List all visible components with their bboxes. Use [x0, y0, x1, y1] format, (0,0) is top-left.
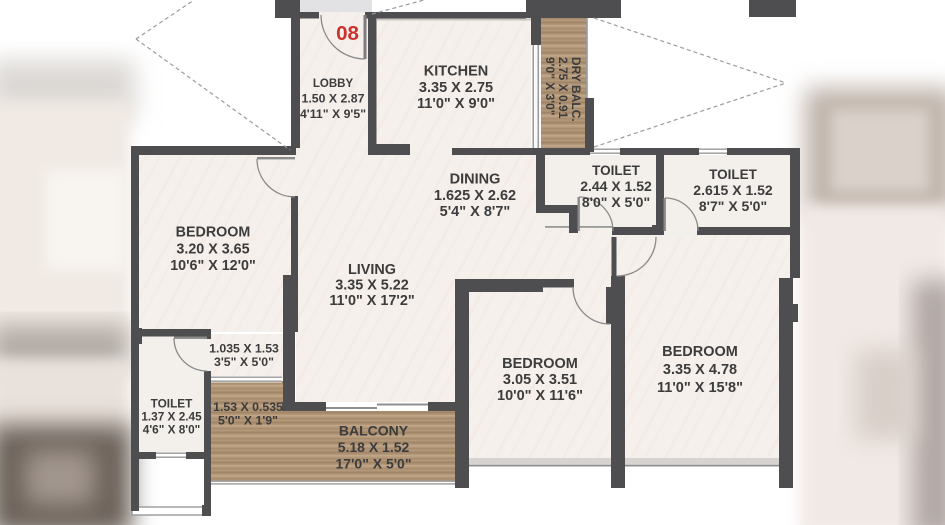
svg-text:1.035 X 1.53: 1.035 X 1.53 — [209, 342, 279, 356]
svg-text:TOILET: TOILET — [151, 397, 194, 411]
svg-text:BEDROOM: BEDROOM — [502, 356, 578, 372]
svg-text:9'0" X 3'0": 9'0" X 3'0" — [543, 57, 557, 115]
svg-text:11'0" X 15'8": 11'0" X 15'8" — [657, 380, 743, 396]
svg-text:TOILET: TOILET — [709, 167, 758, 182]
svg-text:5'4" X 8'7": 5'4" X 8'7" — [440, 204, 511, 220]
svg-text:11'0" X 17'2": 11'0" X 17'2" — [329, 293, 414, 309]
svg-text:KITCHEN: KITCHEN — [424, 64, 488, 80]
svg-text:10'6" X 12'0": 10'6" X 12'0" — [170, 258, 256, 274]
svg-text:LIVING: LIVING — [348, 262, 396, 278]
svg-text:5'0" X 1'9": 5'0" X 1'9" — [218, 414, 278, 428]
svg-text:TOILET: TOILET — [592, 163, 641, 178]
svg-text:4'6" X 8'0": 4'6" X 8'0" — [143, 423, 200, 437]
svg-text:2.75 X 0.91: 2.75 X 0.91 — [556, 57, 570, 119]
svg-text:DRY BALC.: DRY BALC. — [569, 57, 583, 122]
svg-text:08: 08 — [336, 22, 359, 45]
svg-text:5.18 X 1.52: 5.18 X 1.52 — [338, 439, 410, 455]
svg-text:8'0" X 5'0": 8'0" X 5'0" — [582, 194, 650, 210]
svg-text:3.35 X 5.22: 3.35 X 5.22 — [335, 278, 409, 294]
svg-text:3.05 X 3.51: 3.05 X 3.51 — [503, 372, 577, 388]
svg-text:BEDROOM: BEDROOM — [176, 225, 251, 241]
svg-text:3.20 X 3.65: 3.20 X 3.65 — [176, 242, 249, 258]
svg-text:3'5" X 5'0": 3'5" X 5'0" — [214, 355, 274, 369]
svg-text:10'0" X 11'6": 10'0" X 11'6" — [497, 388, 583, 404]
svg-text:1.53 X 0.535: 1.53 X 0.535 — [213, 400, 283, 414]
svg-text:4'11" X 9'5": 4'11" X 9'5" — [300, 107, 366, 121]
svg-text:1.50 X 2.87: 1.50 X 2.87 — [302, 92, 365, 106]
svg-text:3.35 X 2.75: 3.35 X 2.75 — [419, 80, 493, 96]
svg-text:LOBBY: LOBBY — [313, 78, 354, 90]
svg-text:1.625 X 2.62: 1.625 X 2.62 — [434, 188, 516, 204]
svg-text:DINING: DINING — [450, 172, 501, 188]
svg-text:2.615 X 1.52: 2.615 X 1.52 — [693, 182, 773, 198]
svg-text:11'0" X 9'0": 11'0" X 9'0" — [417, 96, 495, 112]
svg-text:8'7" X 5'0": 8'7" X 5'0" — [699, 198, 767, 214]
svg-text:17'0" X 5'0": 17'0" X 5'0" — [336, 456, 412, 472]
svg-text:1.37 X 2.45: 1.37 X 2.45 — [141, 410, 202, 424]
svg-text:2.44 X 1.52: 2.44 X 1.52 — [580, 178, 652, 194]
svg-text:BALCONY: BALCONY — [339, 423, 409, 439]
svg-text:3.35 X 4.78: 3.35 X 4.78 — [663, 362, 737, 378]
svg-text:BEDROOM: BEDROOM — [662, 344, 738, 360]
